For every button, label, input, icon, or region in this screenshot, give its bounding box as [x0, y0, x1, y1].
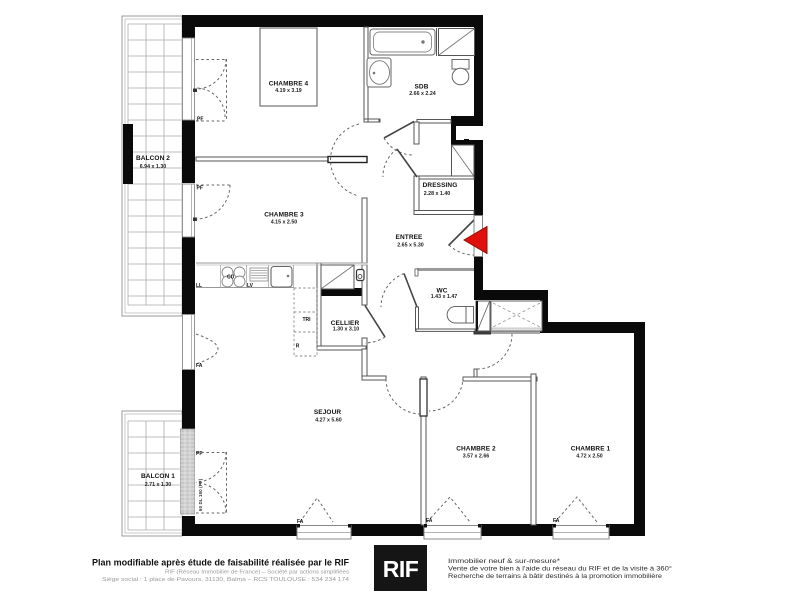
svg-text:DRESSING: DRESSING [423, 182, 458, 189]
svg-text:PF: PF [196, 451, 202, 457]
svg-text:3.57 x 2.66: 3.57 x 2.66 [463, 454, 490, 460]
svg-text:BALCON 1: BALCON 1 [141, 473, 175, 480]
svg-text:BALCON 2: BALCON 2 [136, 155, 170, 162]
svg-text:RIF: RIF [383, 556, 419, 582]
svg-text:SDB: SDB [414, 84, 428, 91]
svg-text:2.66 x 2.24: 2.66 x 2.24 [409, 91, 436, 97]
svg-text:Immobilier neuf & sur-mesure*: Immobilier neuf & sur-mesure* [448, 558, 561, 565]
svg-text:4.72 x 2.50: 4.72 x 2.50 [576, 454, 603, 460]
svg-text:4.19 x 3.19: 4.19 x 3.19 [275, 88, 302, 94]
svg-text:FA: FA [297, 519, 304, 525]
svg-text:Plan modifiable après étude de: Plan modifiable après étude de faisabili… [92, 558, 350, 568]
svg-text:Siège social : 1 place de Pavo: Siège social : 1 place de Pavours, 31130… [102, 577, 349, 583]
svg-text:2.71 x 1.30: 2.71 x 1.30 [145, 482, 172, 488]
svg-text:ENTREE: ENTREE [396, 234, 424, 241]
svg-text:FA: FA [426, 518, 433, 524]
svg-text:CU: CU [227, 275, 235, 281]
svg-text:RIF (Réseau Immobilier de Fran: RIF (Réseau Immobilier de France) – Soci… [165, 570, 349, 576]
svg-text:60 DL 180 (PF): 60 DL 180 (PF) [198, 478, 203, 511]
svg-text:1.30 x 3.10: 1.30 x 3.10 [333, 327, 360, 333]
svg-text:SEJOUR: SEJOUR [314, 409, 342, 416]
svg-text:Vente de votre bien à l'aide d: Vente de votre bien à l'aide du réseau d… [448, 565, 672, 573]
svg-text:CHAMBRE 1: CHAMBRE 1 [571, 446, 611, 453]
svg-text:6.94 x 1.30: 6.94 x 1.30 [140, 164, 167, 170]
svg-text:R: R [296, 344, 300, 350]
svg-text:4.15 x 2.50: 4.15 x 2.50 [271, 220, 298, 226]
svg-text:CHAMBRE 3: CHAMBRE 3 [264, 212, 304, 219]
svg-text:FA: FA [553, 518, 560, 524]
svg-text:4.27 x 5.60: 4.27 x 5.60 [315, 418, 342, 424]
svg-text:FA: FA [196, 363, 203, 369]
svg-text:2.65 x 5.30: 2.65 x 5.30 [397, 243, 424, 249]
svg-text:TRI: TRI [302, 317, 311, 323]
svg-text:PF: PF [197, 186, 203, 192]
svg-text:CHAMBRE 4: CHAMBRE 4 [269, 81, 309, 88]
svg-text:2.28 x 1.40: 2.28 x 1.40 [424, 191, 451, 197]
svg-text:CHAMBRE 2: CHAMBRE 2 [456, 446, 496, 453]
svg-text:Recherche de terrains à bâtir: Recherche de terrains à bâtir destinés à… [448, 573, 662, 580]
svg-text:LV: LV [247, 283, 254, 289]
svg-text:LL: LL [196, 283, 202, 289]
svg-text:1.43 x 1.47: 1.43 x 1.47 [431, 294, 458, 300]
svg-text:PF: PF [197, 117, 203, 123]
